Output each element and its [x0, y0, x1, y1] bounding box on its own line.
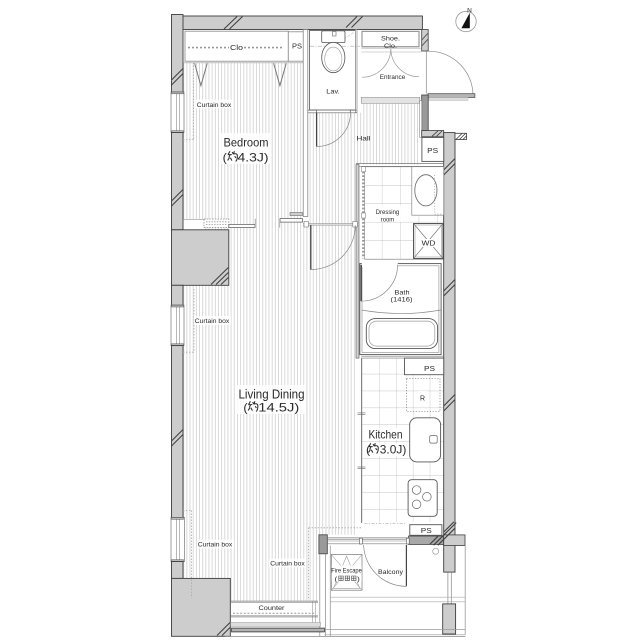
svg-text:Fire Escape: Fire Escape — [331, 568, 362, 575]
svg-text:Kitchen: Kitchen — [369, 428, 403, 442]
svg-text:4.3J): 4.3J) — [238, 151, 269, 165]
svg-text:Hall: Hall — [357, 136, 372, 143]
svg-text:(: ( — [223, 151, 227, 165]
svg-text:Lav.: Lav. — [326, 89, 340, 96]
svg-text:Curtain box: Curtain box — [197, 102, 232, 109]
svg-text:R: R — [420, 396, 425, 403]
svg-text:): ) — [357, 576, 360, 583]
svg-text:(: ( — [243, 401, 247, 415]
svg-text:PS: PS — [421, 528, 432, 535]
svg-text:Bedroom: Bedroom — [224, 135, 269, 149]
svg-text:WD: WD — [422, 241, 436, 248]
svg-text:Balcony: Balcony — [378, 569, 404, 576]
svg-text:PS: PS — [292, 44, 302, 51]
svg-text:N: N — [467, 8, 472, 15]
svg-text:Bath: Bath — [395, 289, 410, 296]
svg-text:Living Dining: Living Dining — [239, 386, 305, 401]
svg-text:14.5J): 14.5J) — [258, 401, 299, 415]
svg-text:Curtain box: Curtain box — [195, 318, 230, 325]
svg-text:Shoe.: Shoe. — [381, 36, 400, 43]
svg-text:Dressing: Dressing — [376, 209, 400, 216]
svg-text:room: room — [381, 216, 395, 223]
svg-text:3.0J): 3.0J) — [380, 443, 407, 457]
svg-text:Curtain box: Curtain box — [198, 542, 233, 549]
svg-text:Clo: Clo — [230, 45, 243, 52]
svg-text:(1416): (1416) — [391, 297, 413, 304]
svg-text:Curtain box: Curtain box — [270, 561, 305, 568]
svg-text:PS: PS — [424, 366, 435, 373]
svg-text:Entrance: Entrance — [380, 74, 406, 81]
svg-text:PS: PS — [427, 148, 438, 155]
svg-text:Counter: Counter — [259, 605, 286, 612]
